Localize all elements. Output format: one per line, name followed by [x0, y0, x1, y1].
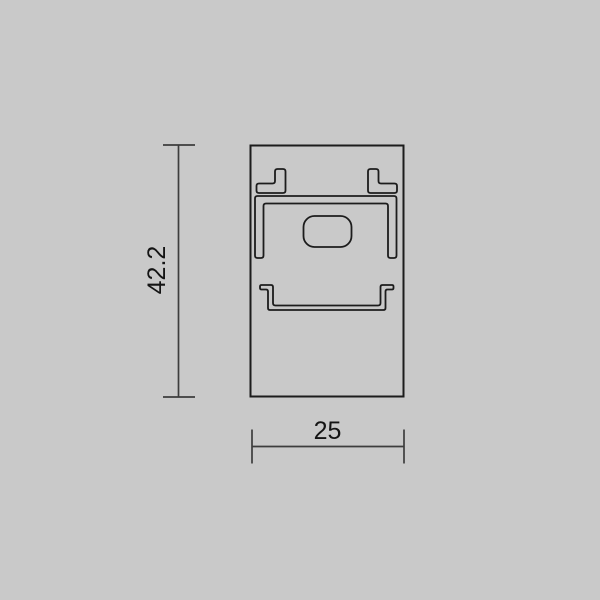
- mounting-hook-right: [368, 169, 397, 193]
- inner-channel-bridge: [255, 196, 397, 258]
- center-cutout: [304, 216, 352, 247]
- end-cap-technical-drawing: 42.2 25: [0, 0, 600, 600]
- width-dimension: 25: [252, 417, 404, 464]
- drawing-canvas: 42.2 25: [0, 0, 600, 600]
- height-dimension-label: 42.2: [143, 246, 171, 295]
- mounting-hook-left: [257, 169, 286, 193]
- bottom-hat-channel: [260, 285, 394, 310]
- height-dimension: 42.2: [143, 145, 195, 397]
- width-dimension-label: 25: [314, 417, 342, 445]
